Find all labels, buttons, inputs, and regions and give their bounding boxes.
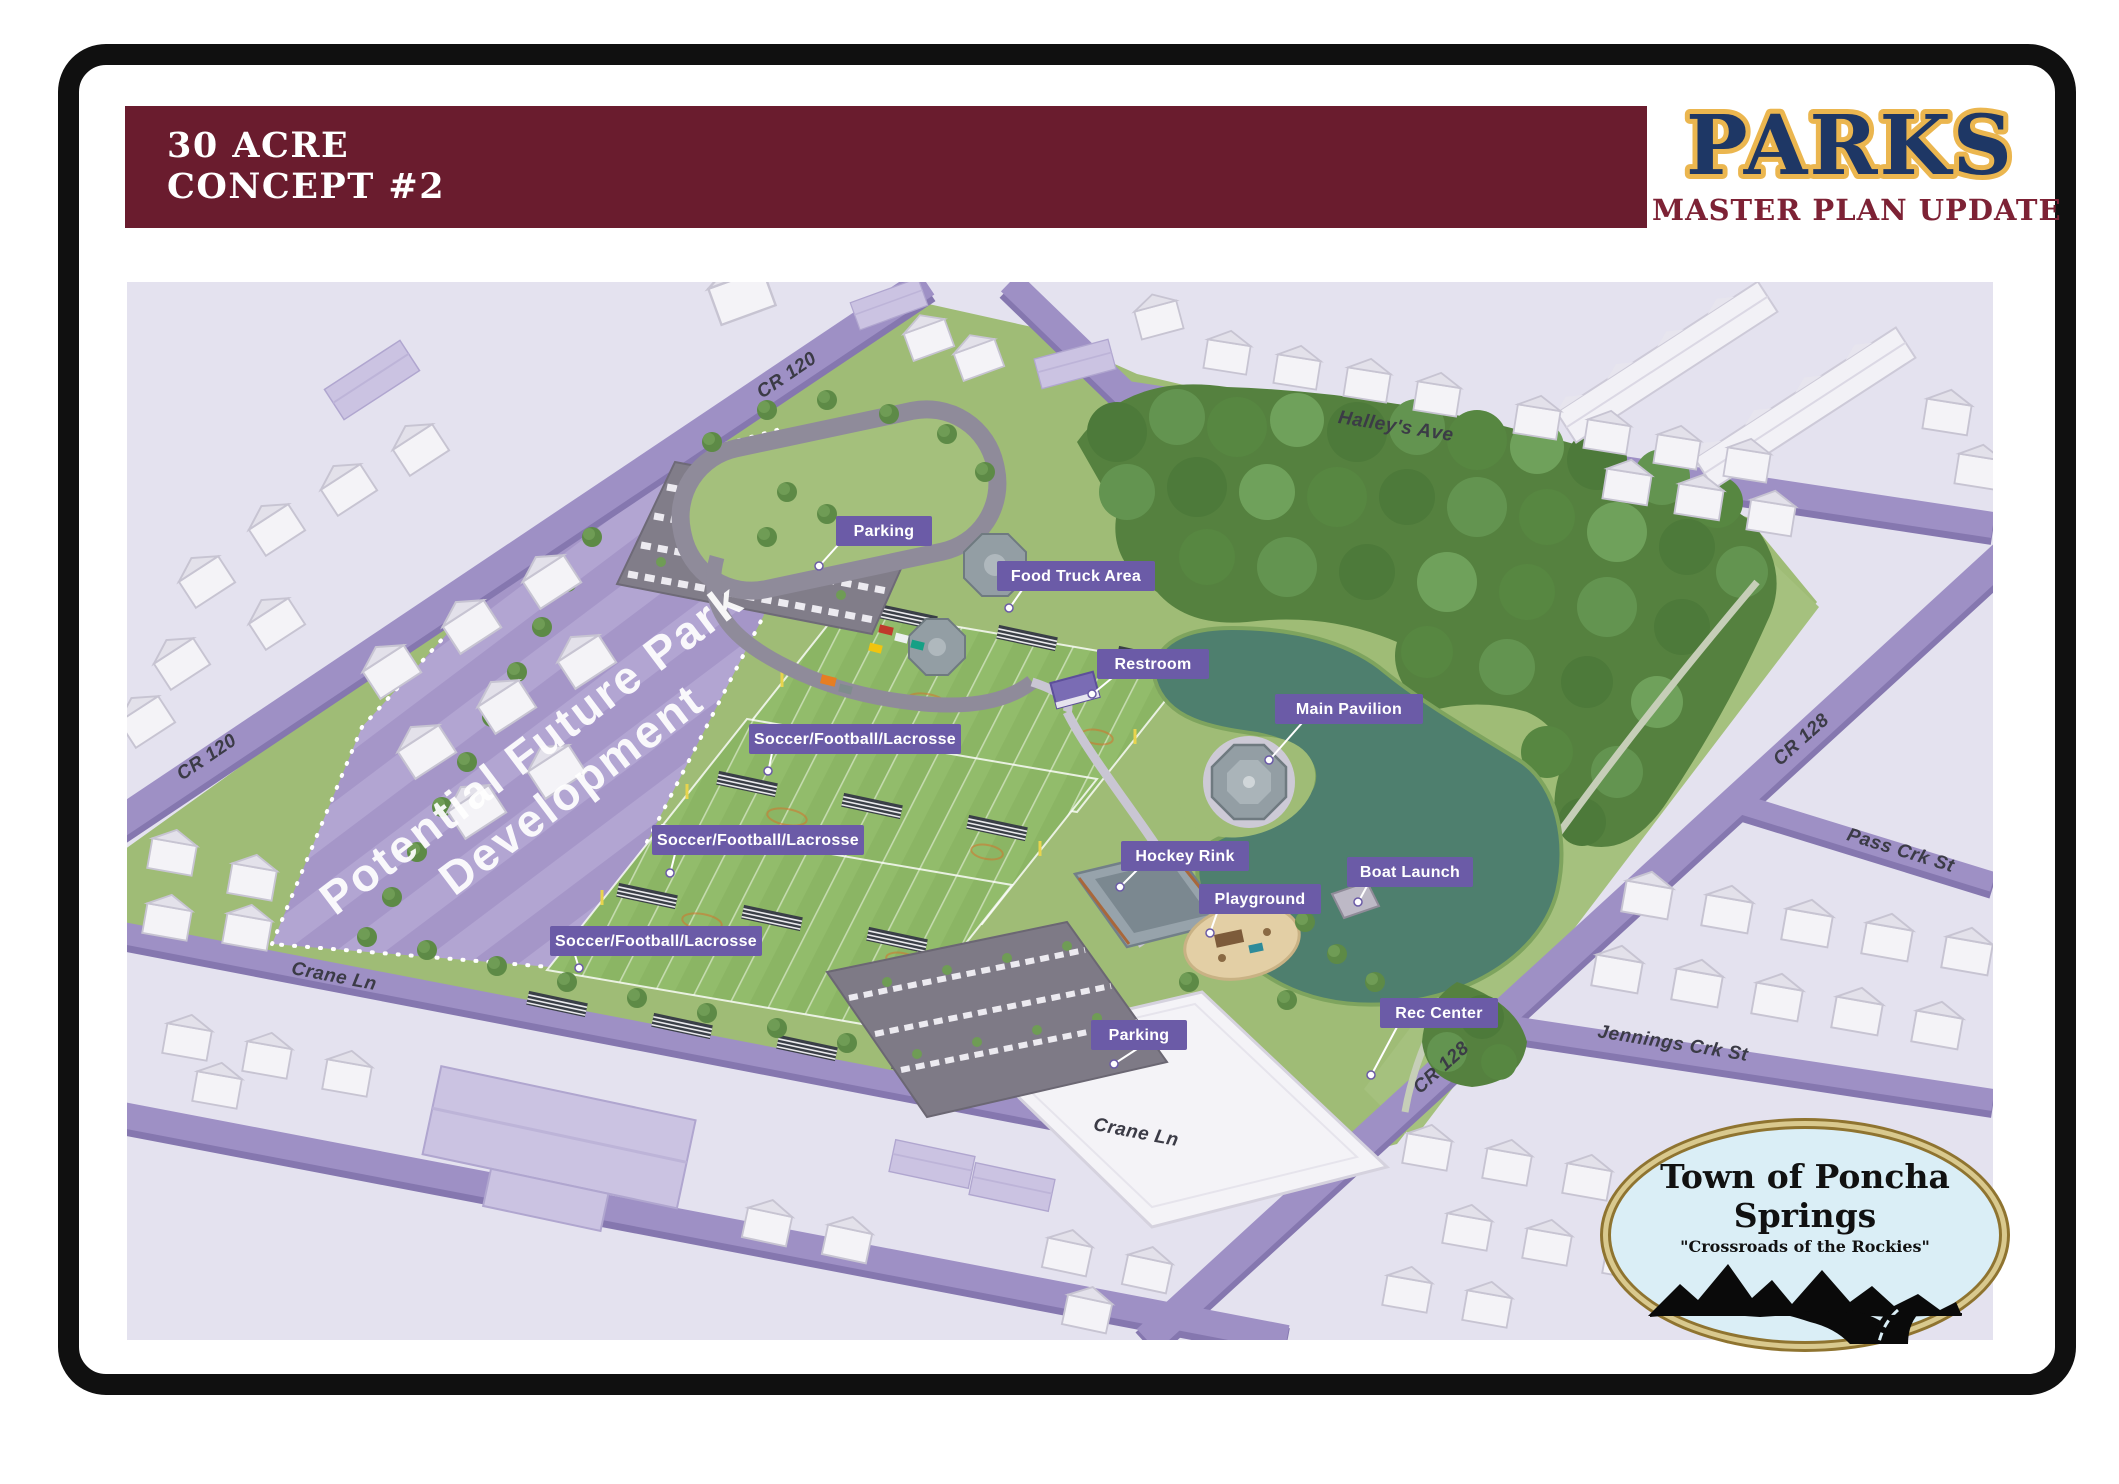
parks-master-plan-logo: PARKS MASTER PLAN UPDATE	[1652, 98, 2048, 238]
svg-text:Rec Center: Rec Center	[1395, 1005, 1482, 1022]
page-title-line1: 30 ACRE	[167, 126, 1647, 167]
svg-text:Soccer/Football/Lacrosse: Soccer/Football/Lacrosse	[555, 933, 757, 950]
svg-text:Playground: Playground	[1214, 891, 1305, 908]
svg-text:Soccer/Football/Lacrosse: Soccer/Football/Lacrosse	[657, 832, 859, 849]
poster-page: { "header": { "title_line1": "30 ACRE", …	[0, 0, 2119, 1484]
page-title-line2: CONCEPT #2	[167, 167, 1647, 208]
parks-subtitle: MASTER PLAN UPDATE	[1652, 193, 2048, 227]
town-name: Town of Poncha Springs	[1611, 1157, 1999, 1235]
svg-text:Boat Launch: Boat Launch	[1360, 864, 1460, 881]
mountains-icon	[1640, 1254, 1970, 1346]
svg-text:Parking: Parking	[854, 523, 915, 540]
title-banner: 30 ACRE CONCEPT #2	[125, 106, 1647, 228]
parks-title: PARKS	[1686, 98, 2014, 194]
town-seal: Town of Poncha Springs "Crossroads of th…	[1608, 1126, 2002, 1344]
svg-text:Restroom: Restroom	[1114, 656, 1191, 673]
parks-wordmark: PARKS	[1652, 98, 2048, 194]
svg-text:Food Truck Area: Food Truck Area	[1011, 568, 1141, 585]
svg-text:Parking: Parking	[1109, 1027, 1170, 1044]
svg-text:Hockey Rink: Hockey Rink	[1135, 848, 1234, 865]
svg-text:Soccer/Football/Lacrosse: Soccer/Football/Lacrosse	[754, 731, 956, 748]
svg-text:Main Pavilion: Main Pavilion	[1296, 701, 1402, 718]
